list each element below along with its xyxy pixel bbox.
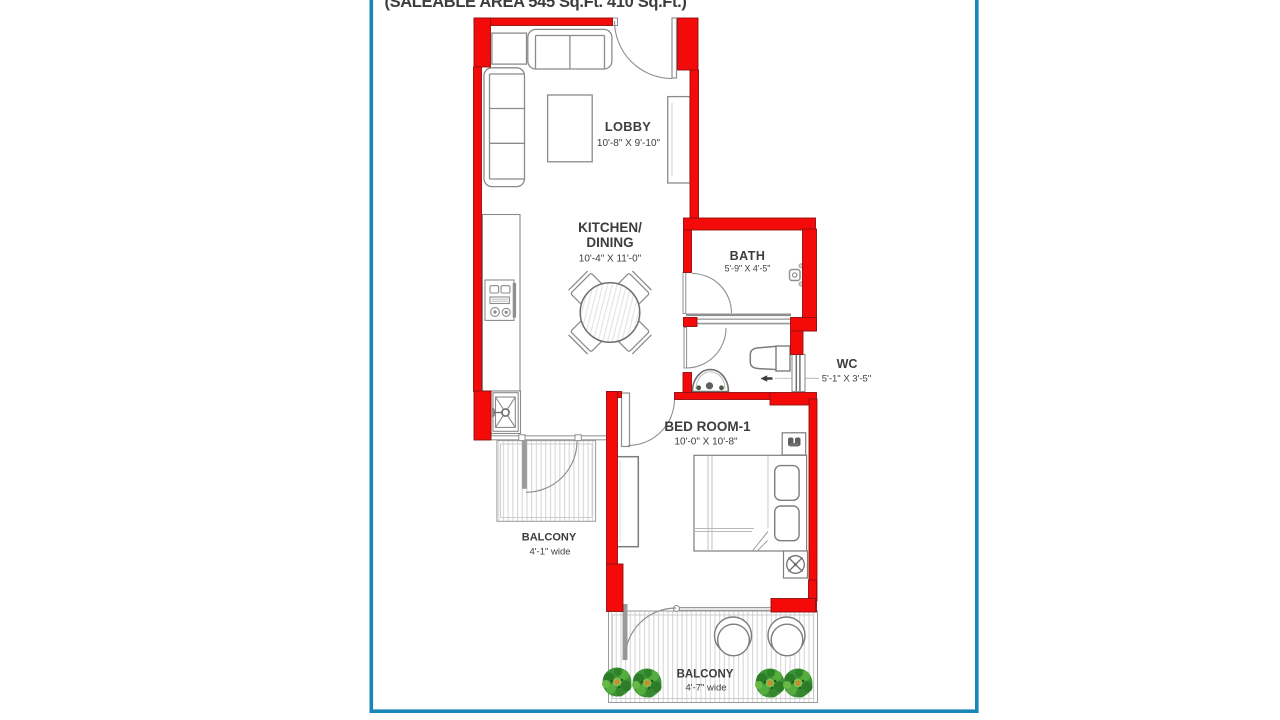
svg-text:BALCONY: BALCONY <box>677 669 734 681</box>
svg-text:10'-0" X 10'-8": 10'-0" X 10'-8" <box>674 437 738 448</box>
svg-text:10'-8" X 9'-10": 10'-8" X 9'-10" <box>597 138 661 149</box>
svg-text:WC: WC <box>837 357 858 371</box>
svg-text:(SALEABLE AREA 545 Sq.Ft. 410: (SALEABLE AREA 545 Sq.Ft. 410 Sq.Ft.) <box>384 0 686 11</box>
svg-text:4'-1" wide: 4'-1" wide <box>529 547 570 558</box>
svg-text:4'-7" wide: 4'-7" wide <box>685 683 726 694</box>
svg-text:BED ROOM-1: BED ROOM-1 <box>664 419 751 434</box>
svg-text:DINING: DINING <box>586 235 633 250</box>
svg-text:BALCONY: BALCONY <box>522 532 577 544</box>
svg-text:BATH: BATH <box>730 249 766 263</box>
svg-text:LOBBY: LOBBY <box>605 119 651 134</box>
svg-text:5'-1" X 3'-5": 5'-1" X 3'-5" <box>822 374 871 385</box>
svg-text:KITCHEN/: KITCHEN/ <box>578 220 642 235</box>
svg-text:5'-9" X 4'-5": 5'-9" X 4'-5" <box>725 264 771 274</box>
svg-text:10'-4" X 11'-0": 10'-4" X 11'-0" <box>579 254 642 265</box>
